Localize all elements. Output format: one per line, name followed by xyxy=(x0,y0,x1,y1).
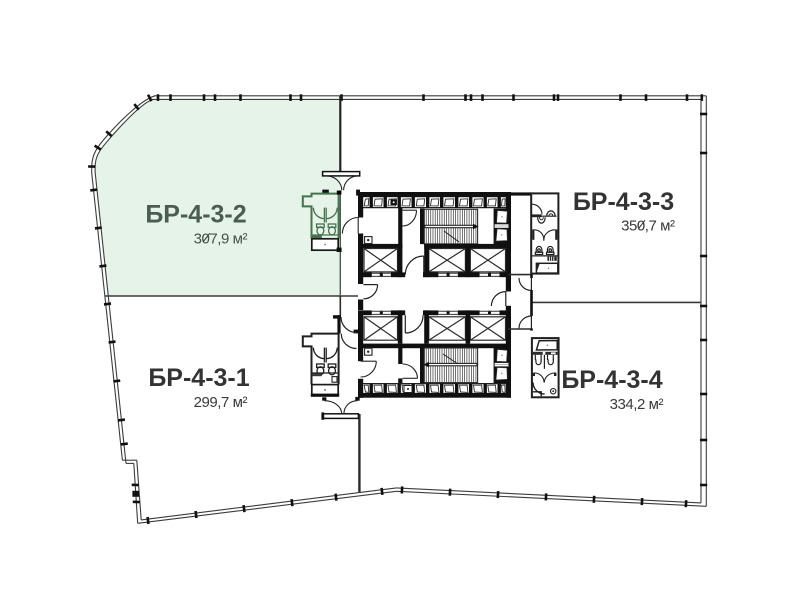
svg-text:307,9 м²: 307,9 м² xyxy=(194,230,248,247)
svg-text:БР-4-3-3: БР-4-3-3 xyxy=(573,188,674,216)
svg-text:299,7 м²: 299,7 м² xyxy=(194,394,248,411)
svg-text:БР-4-3-1: БР-4-3-1 xyxy=(148,364,249,392)
svg-text:БР-4-3-4: БР-4-3-4 xyxy=(561,366,662,394)
svg-text:334,2 м²: 334,2 м² xyxy=(610,396,664,413)
svg-text:350,7 м²: 350,7 м² xyxy=(621,217,675,234)
svg-text:БР-4-3-2: БР-4-3-2 xyxy=(145,201,246,229)
